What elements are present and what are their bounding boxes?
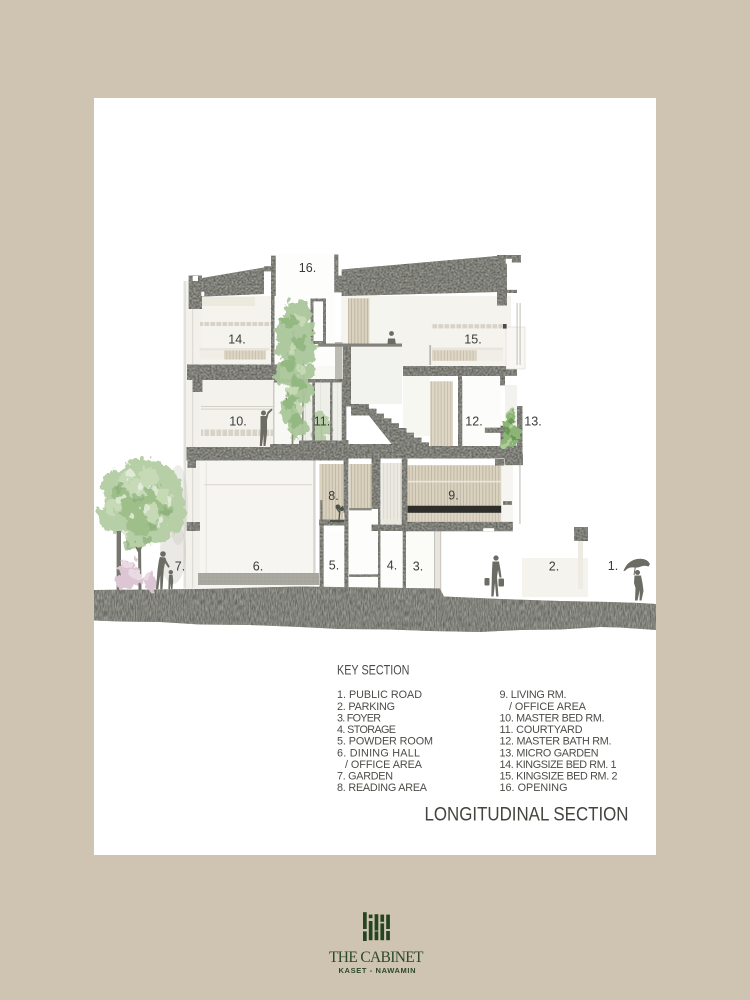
svg-text:1.: 1. xyxy=(608,559,618,573)
svg-text:16.: 16. xyxy=(299,261,316,275)
svg-text:KASET - NAWAMIN: KASET - NAWAMIN xyxy=(339,966,416,975)
svg-text:1. PUBLIC ROAD: 1. PUBLIC ROAD xyxy=(337,689,422,701)
svg-text:3.: 3. xyxy=(413,560,423,574)
svg-text:13. MICRO GARDEN: 13. MICRO GARDEN xyxy=(500,747,599,759)
svg-text:KEY SECTION: KEY SECTION xyxy=(337,662,410,678)
svg-text:4. STORAGE: 4. STORAGE xyxy=(337,724,396,736)
svg-text:14. KINGSIZE BED RM. 1: 14. KINGSIZE BED RM. 1 xyxy=(500,759,617,771)
svg-text:5.: 5. xyxy=(329,559,339,573)
svg-text:15.: 15. xyxy=(464,333,481,347)
svg-text:5. POWDER ROOM: 5. POWDER ROOM xyxy=(337,736,433,748)
svg-text:6.: 6. xyxy=(253,560,263,574)
svg-text:10. MASTER BED RM.: 10. MASTER BED RM. xyxy=(500,712,605,724)
svg-text:THE CABINET: THE CABINET xyxy=(329,949,424,966)
svg-text:8. READING AREA: 8. READING AREA xyxy=(337,782,428,794)
svg-text:7. GARDEN: 7. GARDEN xyxy=(337,771,393,783)
svg-text:11.: 11. xyxy=(314,415,330,429)
svg-text:9. LIVING RM.: 9. LIVING RM. xyxy=(500,689,567,701)
svg-text:16. OPENING: 16. OPENING xyxy=(500,782,568,794)
svg-text:LONGITUDINAL SECTION: LONGITUDINAL SECTION xyxy=(425,804,629,826)
svg-text:3. FOYER: 3. FOYER xyxy=(337,712,381,724)
svg-text:10.: 10. xyxy=(229,415,246,429)
svg-text:4.: 4. xyxy=(387,559,397,573)
svg-text:8.: 8. xyxy=(328,489,338,503)
svg-text:2. PARKING: 2. PARKING xyxy=(337,701,395,713)
svg-text:13.: 13. xyxy=(524,415,541,429)
svg-text:9.: 9. xyxy=(448,489,458,503)
svg-text:/ OFFICE AREA: / OFFICE AREA xyxy=(509,701,587,713)
svg-text:14.: 14. xyxy=(228,333,245,347)
svg-text:12. MASTER BATH RM.: 12. MASTER BATH RM. xyxy=(500,736,612,748)
svg-text:/ OFFICE AREA: / OFFICE AREA xyxy=(345,759,423,771)
svg-text:11. COURTYARD: 11. COURTYARD xyxy=(500,724,583,736)
svg-text:6. DINING HALL: 6. DINING HALL xyxy=(337,747,420,759)
svg-text:15. KINGSIZE BED RM. 2: 15. KINGSIZE BED RM. 2 xyxy=(500,771,618,783)
svg-text:2.: 2. xyxy=(549,560,559,574)
svg-text:12.: 12. xyxy=(465,415,482,429)
svg-text:7.: 7. xyxy=(175,560,185,574)
